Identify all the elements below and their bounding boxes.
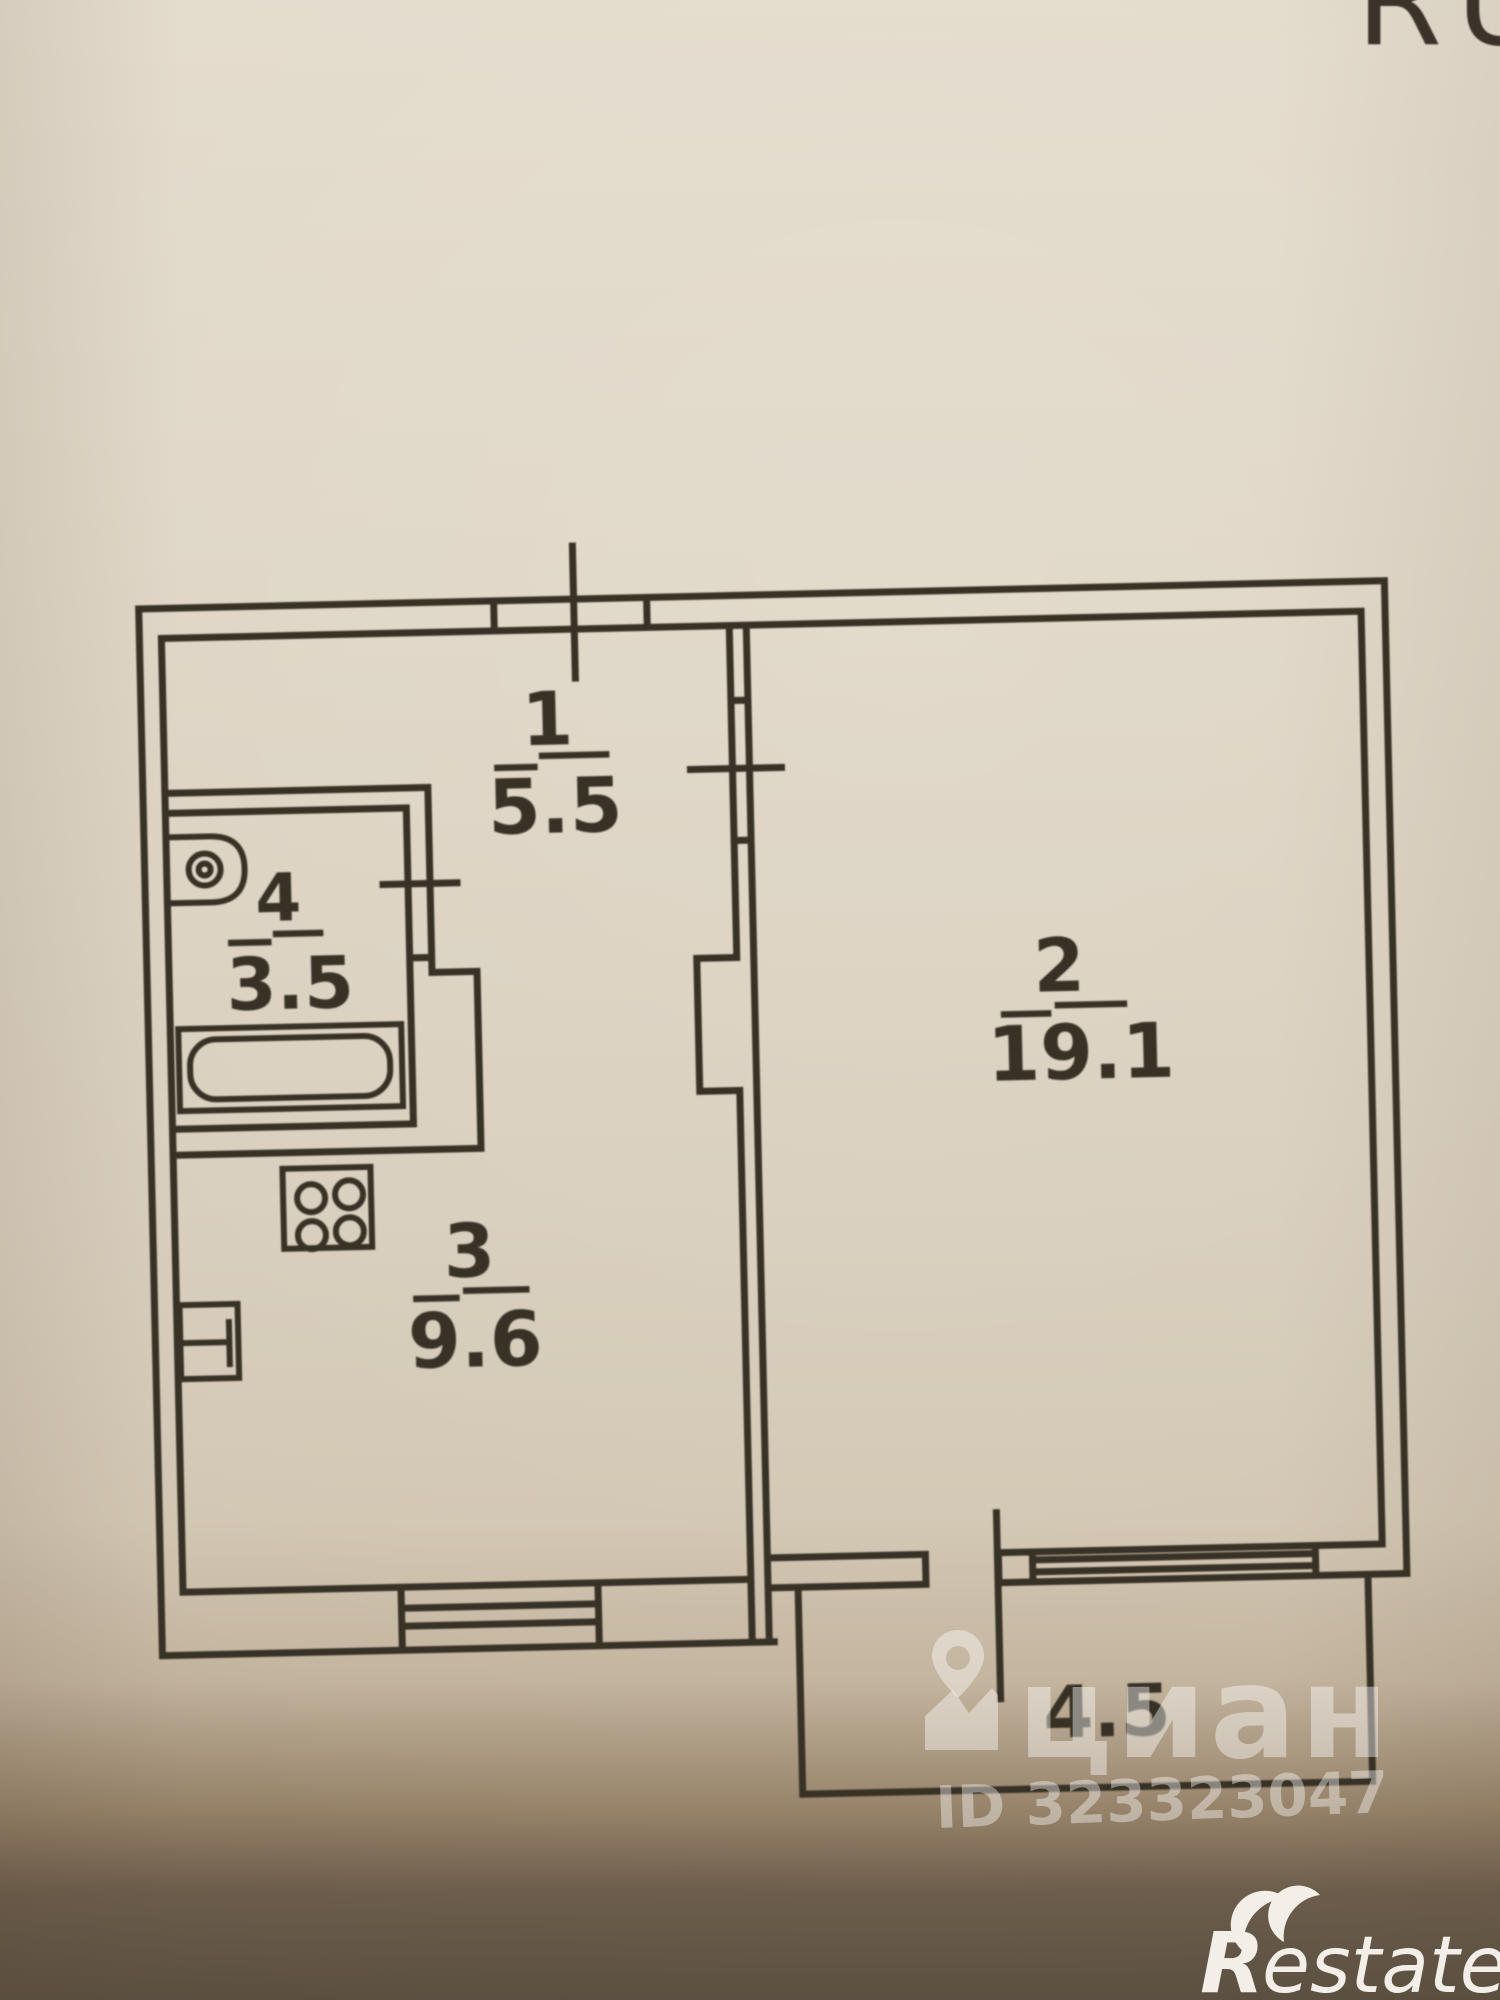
room-2-area: 19.1 — [986, 1006, 1175, 1099]
stove-icon — [282, 1167, 372, 1250]
room-4-number: 4 — [254, 859, 302, 937]
room-3-area: 9.6 — [407, 1294, 544, 1386]
room2-door-tick — [690, 767, 781, 769]
kitchen-window — [401, 1583, 599, 1650]
restate-logo-initial: R — [1200, 1914, 1265, 2000]
bathroom-door-tick — [383, 883, 457, 885]
floorplan-drawing: 1 5.5 2 19.1 3 9.6 4 3.5 4.5 — [137, 528, 1411, 1809]
room-2-number: 2 — [1032, 923, 1085, 1010]
room-1-area: 5.5 — [487, 760, 624, 852]
wall-outline-outer — [139, 581, 1408, 1656]
cian-watermark: циан ID 323323047 — [925, 1630, 1393, 1842]
restate-logo-suffix: estate — [1262, 1921, 1500, 2000]
cian-pin-icon — [932, 1630, 984, 1698]
bathtub — [178, 1024, 403, 1111]
bathroom-sink — [166, 836, 245, 904]
room-3-number: 3 — [443, 1208, 496, 1295]
cian-mark-icon — [925, 1688, 998, 1750]
corner-text-ru: RU — [1356, 0, 1500, 74]
room-1-number: 1 — [521, 676, 574, 763]
floorplan-photo: RU — [0, 0, 1500, 2000]
partition-wall-west — [689, 626, 752, 1644]
floorplan-svg: RU — [0, 0, 1500, 2000]
listing-id-text: ID 323323047 — [934, 1758, 1389, 1842]
kitchen-bottom-wall — [161, 1579, 774, 1656]
balcony-door-tick — [996, 1513, 1000, 1699]
entry-door-tick — [572, 546, 575, 678]
restate-logo: R estate — [1200, 1886, 1500, 2000]
kitchen-sink — [180, 1304, 240, 1379]
wall-outline-inner — [161, 611, 1382, 1592]
room-4-area: 3.5 — [226, 940, 355, 1027]
